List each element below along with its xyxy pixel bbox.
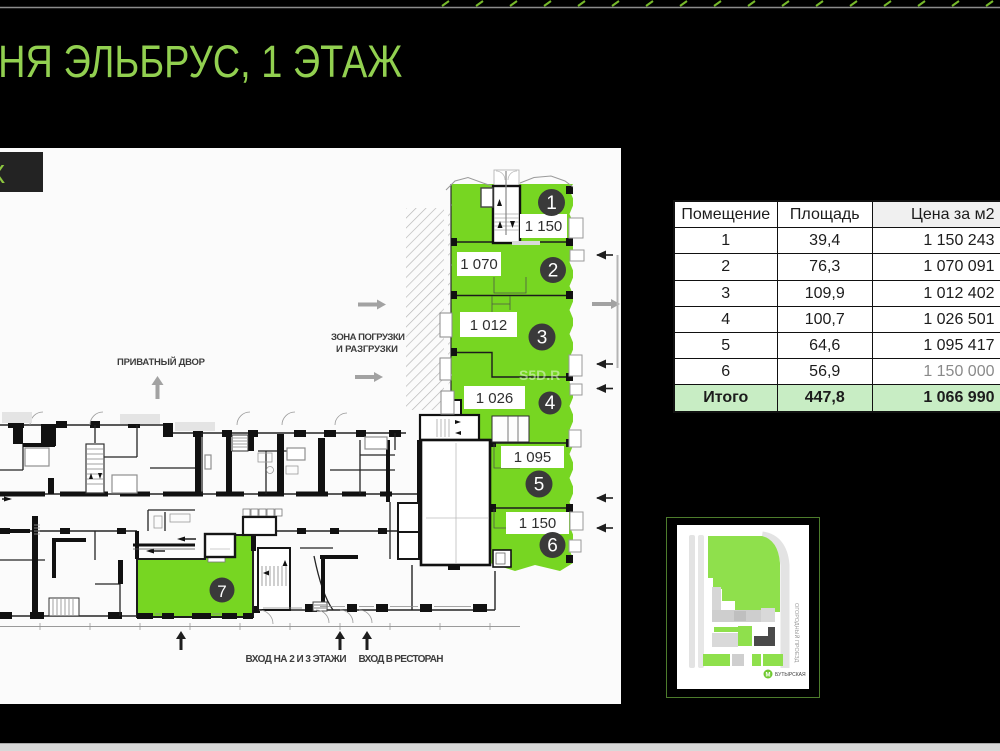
svg-text:1 150: 1 150 <box>525 218 563 235</box>
svg-text:5: 5 <box>534 475 545 496</box>
svg-text:1 026: 1 026 <box>476 390 514 407</box>
svg-text:ВХОД В РЕСТОРАН: ВХОД В РЕСТОРАН <box>359 654 444 665</box>
svg-text:ОГОРОДНЫЙ ПРОЕЗД: ОГОРОДНЫЙ ПРОЕЗД <box>793 603 801 663</box>
svg-text:И РАЗГРУЗКИ: И РАЗГРУЗКИ <box>336 344 398 355</box>
svg-text:1 095: 1 095 <box>514 449 552 466</box>
svg-text:1 070: 1 070 <box>460 256 498 273</box>
svg-text:1: 1 <box>546 193 557 214</box>
svg-text:6: 6 <box>547 536 558 557</box>
svg-text:2: 2 <box>548 261 559 282</box>
svg-text:ВХОД НА 2 И 3 ЭТАЖИ: ВХОД НА 2 И 3 ЭТАЖИ <box>246 654 347 665</box>
svg-text:ПРИВАТНЫЙ ДВОР: ПРИВАТНЫЙ ДВОР <box>117 356 206 368</box>
svg-text:ЗОНА ПОГРУЗКИ: ЗОНА ПОГРУЗКИ <box>331 332 405 343</box>
svg-text:3: 3 <box>537 328 548 349</box>
svg-text:1 012: 1 012 <box>470 317 508 334</box>
svg-text:М: М <box>766 673 771 679</box>
svg-text:БУТЫРСКАЯ: БУТЫРСКАЯ <box>775 672 806 678</box>
svg-text:7: 7 <box>217 582 226 601</box>
svg-text:S5D.R: S5D.R <box>519 367 560 383</box>
svg-text:4: 4 <box>545 393 556 414</box>
svg-text:1 150: 1 150 <box>519 515 557 532</box>
